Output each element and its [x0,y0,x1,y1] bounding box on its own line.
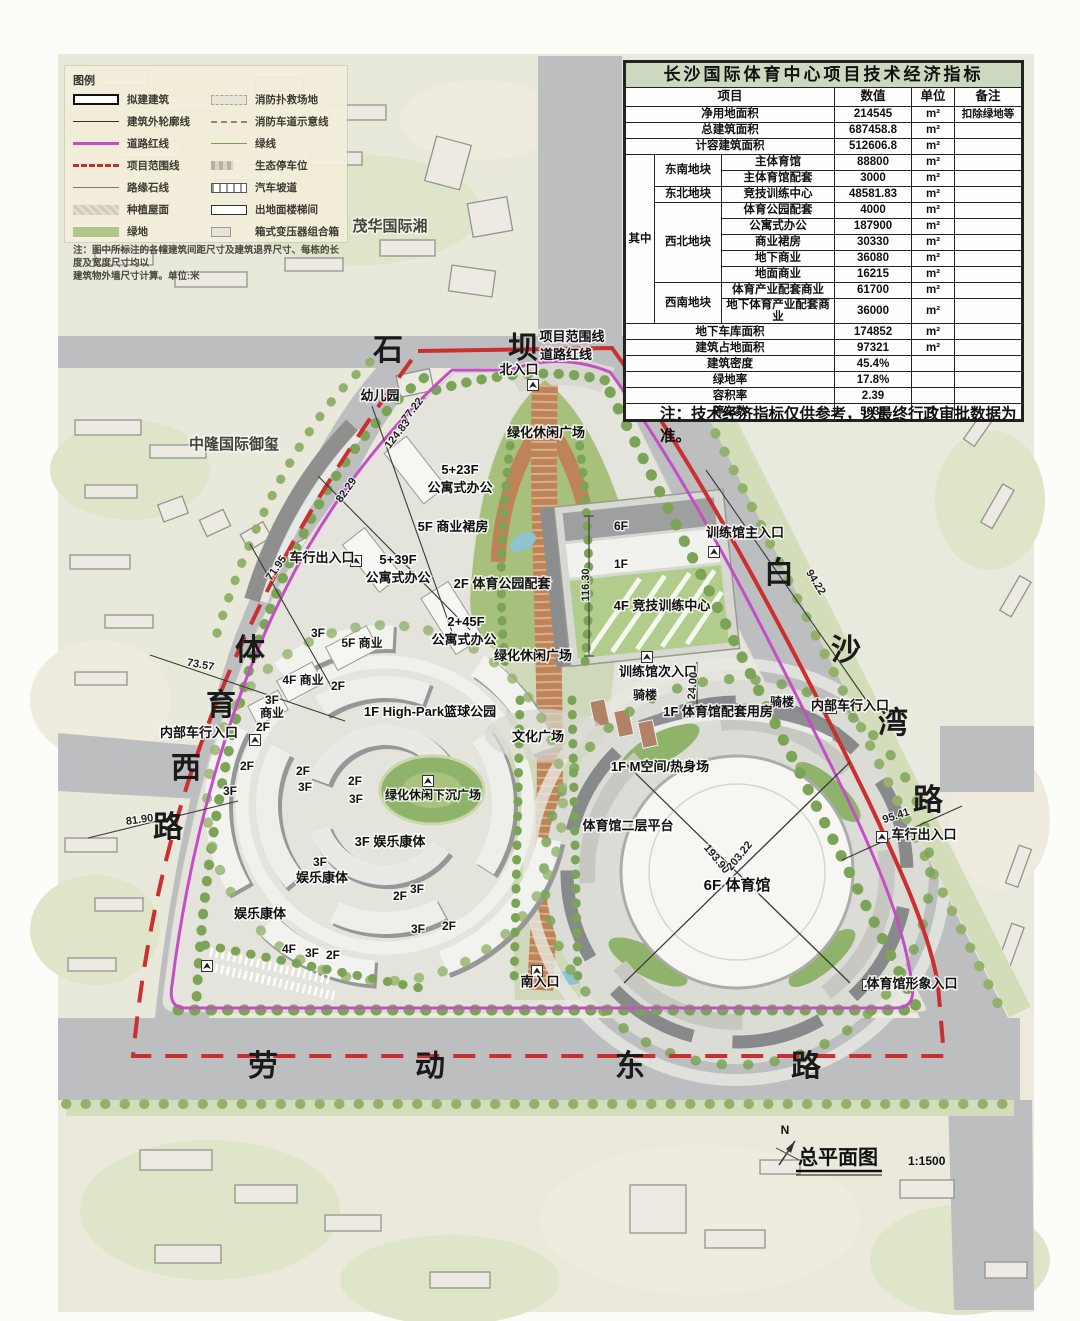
cell-item: 体育产业配套商业 [722,283,835,299]
table-title-row: 长沙国际体育中心项目技术经济指标 [626,63,1022,88]
cell-item: 建筑密度 [626,356,835,372]
gym-label: 6F 体育馆 [704,876,771,894]
commercial-label: 5F 商业 [341,635,382,650]
entertainment-label: 娱乐康体 [234,906,287,921]
floor-tag: 3F [305,946,319,960]
floor-tag: 2F [331,679,345,693]
cell-block: 东南地块 [655,155,722,187]
legend-label: 生态停车位 [255,158,339,173]
legend-label: 道路红线 [127,136,203,151]
podium-label: 5F 商业裙房 [418,519,489,534]
vehicle-exit-label: 车行出入口 [289,550,354,565]
training-center-label: 4F 竞技训练中心 [614,598,711,613]
cell-value: 48581.83 [835,187,912,203]
legend-label: 出地面楼梯间 [255,202,339,217]
cell-item: 体育公园配套 [722,203,835,219]
floor-tag: 2F [326,948,340,962]
cell-item: 地下车库面积 [626,324,835,340]
table-row: 建筑占地面积 97321 m² [626,340,1022,356]
road-name-char: 动 [415,1050,445,1083]
road-name-char: 育 [206,688,236,722]
legend-swatch-ground-stairwell [211,205,247,215]
gym-support-label: 1F 体育馆配套用房 [663,704,773,719]
cell-unit: m² [912,219,955,235]
m-space-label: 1F M空间/热身场 [611,759,709,774]
cell-value: 3000 [835,171,912,187]
north-entrance-icon [528,380,539,391]
cell-value: 17.8% [835,372,912,388]
cell-value: 61700 [835,283,912,299]
cell-item: 净用地面积 [626,107,835,123]
road-name-char: 白 [764,557,794,590]
road-name-char: 路 [913,784,944,817]
table-note: 注：技术经济指标仅供参考，以最终行政审批数据为准。 [660,402,1030,446]
cell-block: 西南地块 [655,283,722,324]
legend-label: 拟建建筑 [127,92,203,107]
dimension: 116.30 [580,568,592,601]
cell-unit: m² [912,324,955,340]
north-approach-road [538,56,622,348]
road-name-char: 劳 [248,1050,278,1083]
north-label: N [781,1123,790,1137]
internal-vehicle-entrance-icon [250,735,261,746]
floor-tag: 2F [393,889,407,903]
cell-item: 商业裙房 [722,235,835,251]
tower-label: 5+39F [379,552,416,567]
table-row: 绿地率 17.8% [626,372,1022,388]
legend-swatch-road-red-line [73,142,119,145]
cell-unit: m² [912,171,955,187]
table-row: 西南地块 体育产业配套商业 61700 m² [626,283,1022,299]
floor-tag: 3F [223,784,237,798]
cell-group: 其中 [626,155,655,324]
floor-tag: 4F [282,942,296,956]
training-sub-entrance-label: 训练馆次入口 [619,664,697,679]
legend-swatch-curb-line [73,187,119,188]
qilou-label: 骑楼 [770,694,794,709]
cell-value: 36080 [835,251,912,267]
floor-tag: 3F [298,780,312,794]
col-header-note: 备注 [955,88,1022,107]
cell-unit: m² [912,187,955,203]
cell-item: 主体育馆 [722,155,835,171]
cell-value: 36000 [835,299,912,324]
tower-label: 2+45F [447,614,484,629]
table-row: 东北地块 竞技训练中心 48581.83 m² [626,187,1022,203]
transformer-icon [202,961,213,972]
cell-unit: m² [912,283,955,299]
legend-label: 种植屋面 [127,202,203,217]
road-name-char: 石 [372,334,403,367]
cell-block: 东北地块 [655,187,722,203]
commercial-label: 商业 [260,705,284,720]
legend-swatch-planned-building [73,94,119,105]
gym-image-entrance-label: 体育馆形象入口 [866,976,957,991]
sunken-plaza-icon [423,776,434,787]
cell-unit: m² [912,267,955,283]
commercial-label: 4F 商业 [282,672,323,687]
legend-swatch-eco-parking [211,161,233,170]
green-plaza-label: 绿化休闲广场 [507,425,585,440]
floor-tag: 2F [442,919,456,933]
cell-unit: m² [912,251,955,267]
cell-unit: m² [912,123,955,139]
cell-value: 187900 [835,219,912,235]
road-name-char: 东 [615,1049,645,1083]
highpark-label: 1F High-Park篮球公园 [364,704,496,719]
table-row: 净用地面积 214545 m² 扣除绿地等 [626,107,1022,123]
legend-label: 路缘石线 [127,180,203,195]
gym-platform-label: 体育馆二层平台 [582,818,673,833]
floor-tag: 3F [349,792,363,806]
legend-label: 消防扑救场地 [255,92,339,107]
tower-label: 公寓式办公 [365,570,430,585]
legend-note: 注：图中所标注的各幢建筑间距尺寸及建筑退界尺寸、每栋的长度及宽度尺寸均以 建筑物… [73,245,339,283]
legend-swatch-fire-lane-line [211,121,247,123]
floor-tag: 3F [313,855,327,869]
project-boundary-label: 项目范围线 [539,329,604,344]
table-row: 地下车库面积 174852 m² [626,324,1022,340]
drawing-title: 总平面图 [798,1145,878,1169]
table-row: 总建筑面积 687458.8 m² [626,123,1022,139]
cell-unit: m² [912,107,955,123]
legend-label: 项目范围线 [127,158,203,173]
east-branch-road [940,726,1034,792]
indicator-table: 长沙国际体育中心项目技术经济指标 项目 数值 单位 备注 净用地面积 21454… [625,62,1022,420]
table-title: 长沙国际体育中心项目技术经济指标 [626,63,1022,88]
legend-label: 汽车坡道 [255,180,339,195]
cell-value: 174852 [835,324,912,340]
col-header-unit: 单位 [912,88,955,107]
cell-note: 扣除绿地等 [955,107,1022,123]
floor-tag: 2F [296,764,310,778]
legend-swatch-green-line [211,143,247,144]
table-row: 计容建筑面积 512606.8 m² [626,139,1022,155]
legend-label: 绿线 [255,136,339,151]
road-name-char: 体 [235,634,266,667]
road-redline-label: 道路红线 [540,347,592,362]
cell-item: 绿地率 [626,372,835,388]
cell-value: 4000 [835,203,912,219]
cell-block: 西北地块 [655,203,722,283]
road-name-char: 路 [153,811,184,844]
legend-swatch-transformer-box [211,227,231,237]
legend-swatch-green-space [73,227,119,237]
cell-unit: m² [912,139,955,155]
table-row: 西北地块 体育公园配套 4000 m² [626,203,1022,219]
floor-tag: 2F [240,759,254,773]
cell-item: 建筑占地面积 [626,340,835,356]
south-entrance-label: 南入口 [520,974,559,989]
table-header-row: 项目 数值 单位 备注 [626,88,1022,107]
legend-label: 建筑外轮廓线 [127,114,203,129]
internal-vehicle-label: 内部车行入口 [160,725,238,740]
legend-note-line1: 注：图中所标注的各幢建筑间距尺寸及建筑退界尺寸、每栋的长度及宽度尺寸均以 [73,245,339,269]
sunken-plaza-label: 绿化休闲下沉广场 [385,787,481,802]
cell-item: 计容建筑面积 [626,139,835,155]
vehicle-exit-icon [877,832,888,843]
legend-swatch-building-outline-line [73,121,119,122]
district-label: 茂华国际湘 [352,217,427,235]
cell-item: 地面商业 [722,267,835,283]
district-label: 中隆国际御玺 [189,435,279,453]
tower-label: 5+23F [441,462,478,477]
cell-item: 主体育馆配套 [722,171,835,187]
kindergarten-label: 幼儿园 [360,388,399,403]
cell-value: 16215 [835,267,912,283]
park-support-label: 2F 体育公园配套 [454,576,552,591]
legend-note-line2: 建筑物外墙尺寸计算。单位:米 [73,271,200,282]
north-entrance-label: 北入口 [499,362,538,377]
road-name-char: 西 [171,752,201,785]
table-row: 建筑密度 45.4% [626,356,1022,372]
cell-value: 512606.8 [835,139,912,155]
col-header-value: 数值 [835,88,912,107]
legend-swatch-car-ramp [211,183,247,193]
table-row: 其中 东南地块 主体育馆 88800 m² [626,155,1022,171]
legend-label: 箱式变压器组合箱 [255,224,339,239]
col-header-item: 项目 [626,88,835,107]
road-name-char: 坝 [508,332,538,365]
cell-unit: m² [912,235,955,251]
cell-unit: m² [912,155,955,171]
cell-item: 地下体育产业配套商业 [722,299,835,324]
floor-tag: 3F [411,922,425,936]
green-plaza-label: 绿化休闲广场 [494,648,572,663]
dimension: 24.00 [686,672,700,700]
culture-plaza-label: 文化广场 [512,729,564,744]
tower-label: 公寓式办公 [431,632,496,647]
cell-value: 88800 [835,155,912,171]
floor-tag: 6F [614,519,628,533]
tower-label: 公寓式办公 [427,480,492,495]
cell-unit: m² [912,299,955,324]
entertainment-label: 3F 娱乐康体 [355,834,427,849]
road-name-char: 沙 [831,634,861,667]
drawing-scale: 1:1500 [908,1154,946,1168]
training-main-entrance-label: 训练馆主入口 [706,525,784,540]
cell-unit: m² [912,340,955,356]
entertainment-label: 娱乐康体 [296,870,349,885]
floor-tag: 2F [348,774,362,788]
road-name-char: 路 [791,1050,822,1083]
floor-tag: 2F [256,720,270,734]
training-main-entrance-icon [709,547,720,558]
cell-item: 地下商业 [722,251,835,267]
training-sub-entrance-icon [642,652,653,663]
cell-value: 214545 [835,107,912,123]
floor-tag: 1F [614,557,628,571]
cell-value: 45.4% [835,356,912,372]
legend-swatch-planted-roof [73,205,119,215]
training-center-building [540,489,740,667]
floor-tag: 3F [265,693,279,707]
floor-tag: 3F [410,882,424,896]
cell-value: 97321 [835,340,912,356]
cell-value: 687458.8 [835,123,912,139]
cell-unit: m² [912,203,955,219]
cell-value: 30330 [835,235,912,251]
site-plan-sheet: 石 坝 白 沙 湾 路 体 育 西 路 劳 动 东 路 茂华国际湘 中隆国际御玺… [0,0,1080,1321]
legend-title: 图例 [73,72,339,88]
legend-label: 消防车道示意线 [255,114,339,129]
cell-item: 竞技训练中心 [722,187,835,203]
vehicle-exit-label: 车行出入口 [891,827,956,842]
legend-panel: 图例 拟建建筑 消防扑救场地 建筑外轮廓线 消防车道示意线 道路红线 绿线 项目… [65,66,347,242]
cell-item: 公寓式办公 [722,219,835,235]
legend-label: 绿地 [127,224,203,239]
internal-vehicle-label: 内部车行入口 [811,698,889,713]
qilou-label: 骑楼 [633,687,657,702]
cell-item: 总建筑面积 [626,123,835,139]
floor-tag: 3F [311,626,325,640]
legend-swatch-fire-rescue-area [211,95,247,105]
legend-swatch-project-boundary-line [73,164,119,167]
